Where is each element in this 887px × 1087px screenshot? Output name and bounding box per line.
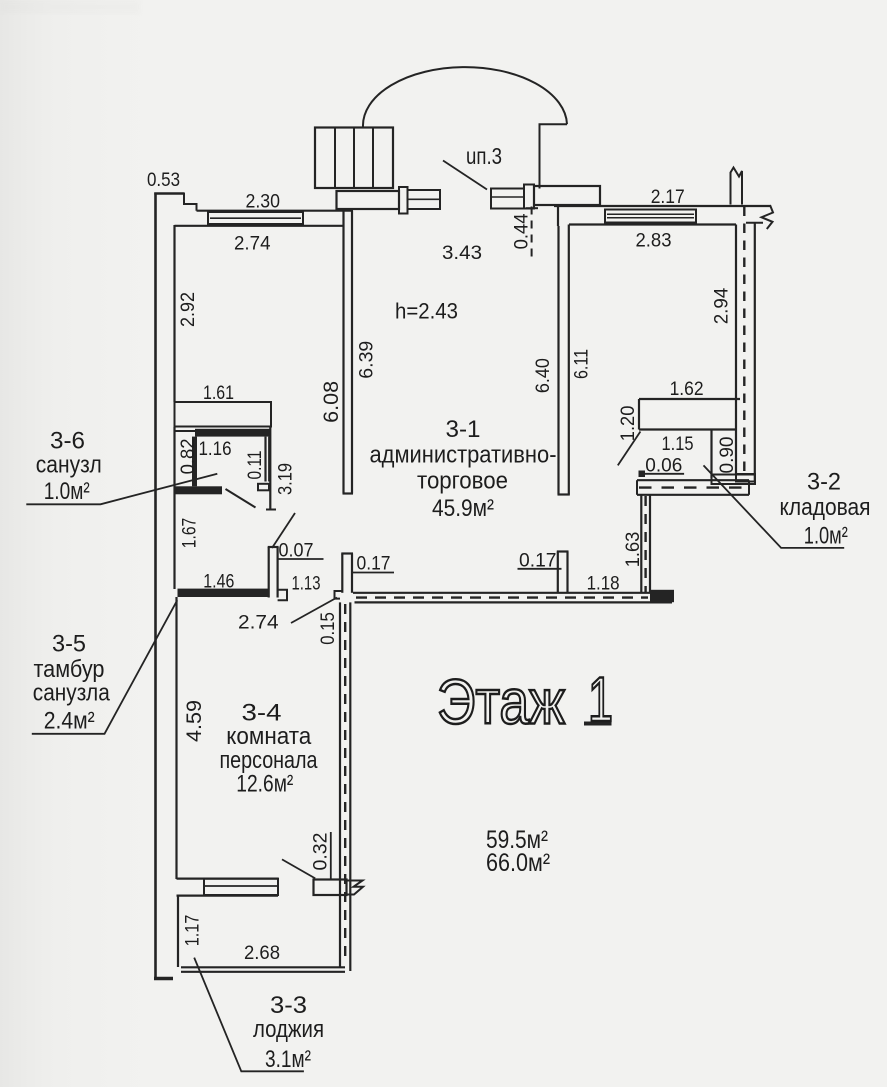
svg-text:лоджия: лоджия xyxy=(253,1016,324,1043)
svg-text:0.53: 0.53 xyxy=(147,169,180,191)
svg-text:0.82: 0.82 xyxy=(177,438,199,474)
svg-text:0.32: 0.32 xyxy=(309,833,331,871)
svg-text:0.06: 0.06 xyxy=(645,455,682,477)
svg-text:3-1: 3-1 xyxy=(446,416,481,443)
svg-text:2.92: 2.92 xyxy=(177,292,199,327)
svg-text:0.07: 0.07 xyxy=(279,540,314,562)
svg-text:2.4м²: 2.4м² xyxy=(44,708,95,735)
svg-text:3-5: 3-5 xyxy=(52,631,86,658)
svg-text:1.15: 1.15 xyxy=(662,433,694,455)
svg-text:торговое: торговое xyxy=(417,468,508,495)
svg-text:0.17: 0.17 xyxy=(357,553,391,575)
svg-text:1.18: 1.18 xyxy=(587,573,620,595)
svg-text:2.94: 2.94 xyxy=(711,288,733,325)
svg-text:3-2: 3-2 xyxy=(807,469,841,496)
svg-text:h=2.43: h=2.43 xyxy=(395,299,458,324)
svg-text:6.08: 6.08 xyxy=(320,381,343,423)
svg-text:1.0м²: 1.0м² xyxy=(804,523,848,550)
svg-text:0.90: 0.90 xyxy=(716,436,738,473)
svg-text:1.62: 1.62 xyxy=(670,378,704,400)
svg-text:2.30: 2.30 xyxy=(246,191,281,213)
svg-text:2.74: 2.74 xyxy=(238,612,279,634)
svg-text:6.11: 6.11 xyxy=(570,349,592,379)
svg-text:6.40: 6.40 xyxy=(532,358,554,393)
svg-text:4.59: 4.59 xyxy=(183,700,206,742)
svg-text:0.44: 0.44 xyxy=(510,213,532,249)
svg-text:санузл: санузл xyxy=(36,452,102,479)
svg-text:6.39: 6.39 xyxy=(356,341,378,379)
svg-text:0.15: 0.15 xyxy=(317,612,339,645)
svg-text:uп.3: uп.3 xyxy=(466,143,502,169)
svg-text:3.19: 3.19 xyxy=(275,463,297,495)
svg-text:1.63: 1.63 xyxy=(622,532,644,568)
svg-text:1.67: 1.67 xyxy=(179,518,201,548)
svg-text:Этаж: Этаж xyxy=(437,666,565,737)
svg-text:3-6: 3-6 xyxy=(50,428,85,455)
svg-text:комната: комната xyxy=(226,723,312,750)
svg-text:3.43: 3.43 xyxy=(442,242,482,264)
svg-text:1.61: 1.61 xyxy=(203,382,234,404)
svg-text:0.11: 0.11 xyxy=(244,451,266,480)
svg-text:санузла: санузла xyxy=(33,680,111,707)
svg-text:2.74: 2.74 xyxy=(234,233,271,255)
svg-text:1.16: 1.16 xyxy=(199,438,232,460)
svg-text:1.13: 1.13 xyxy=(292,573,321,595)
svg-text:0.17: 0.17 xyxy=(519,550,557,572)
svg-text:66.0м²: 66.0м² xyxy=(486,849,550,877)
svg-text:2.68: 2.68 xyxy=(244,942,280,964)
svg-text:45.9м²: 45.9м² xyxy=(432,495,494,522)
svg-text:кладовая: кладовая xyxy=(780,494,871,521)
svg-text:3.1м²: 3.1м² xyxy=(265,1046,311,1073)
svg-text:12.6м²: 12.6м² xyxy=(236,771,293,798)
svg-text:1.17: 1.17 xyxy=(182,915,204,947)
svg-text:2.17: 2.17 xyxy=(651,186,685,208)
svg-text:1: 1 xyxy=(588,664,613,735)
svg-text:3-3: 3-3 xyxy=(270,992,307,1019)
svg-text:1.0м²: 1.0м² xyxy=(44,478,90,505)
svg-text:1.46: 1.46 xyxy=(203,571,234,593)
svg-text:административно-: административно- xyxy=(370,442,557,469)
svg-text:1.20: 1.20 xyxy=(617,405,639,441)
svg-text:2.83: 2.83 xyxy=(636,230,672,252)
